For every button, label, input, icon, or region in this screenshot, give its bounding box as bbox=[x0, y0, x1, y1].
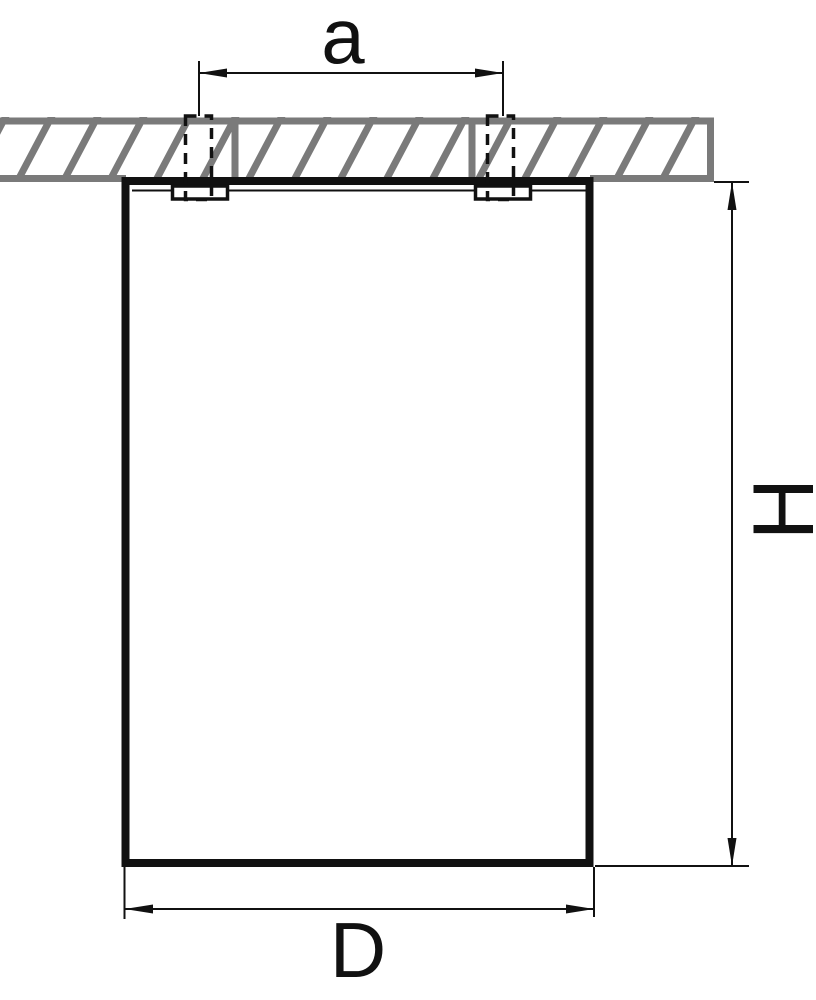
dim-h-arrow-top bbox=[728, 182, 737, 210]
dim-a-arrow-right bbox=[475, 69, 503, 78]
dim-h-arrow-bottom bbox=[728, 838, 737, 866]
dim-d-arrow-left bbox=[125, 905, 153, 914]
dim-a-label: a bbox=[321, 0, 365, 80]
dimension-d: D bbox=[125, 867, 595, 994]
fixture-body bbox=[126, 181, 590, 863]
dim-h-label: H bbox=[736, 478, 816, 540]
dim-d-arrow-right bbox=[566, 905, 594, 914]
dimension-a: a bbox=[199, 0, 503, 116]
mounting-boss-right bbox=[476, 186, 531, 199]
dim-d-label: D bbox=[330, 906, 386, 994]
hatch-stroke bbox=[752, 114, 789, 184]
drawing-page: a H D bbox=[0, 0, 816, 1000]
ceiling-slab bbox=[0, 114, 789, 184]
dim-a-arrow-left bbox=[199, 69, 227, 78]
fixture-dimension-drawing: a H D bbox=[0, 0, 816, 1000]
dimension-h: H bbox=[595, 182, 816, 866]
mounting-boss-left bbox=[173, 186, 228, 199]
fixture bbox=[126, 116, 590, 863]
